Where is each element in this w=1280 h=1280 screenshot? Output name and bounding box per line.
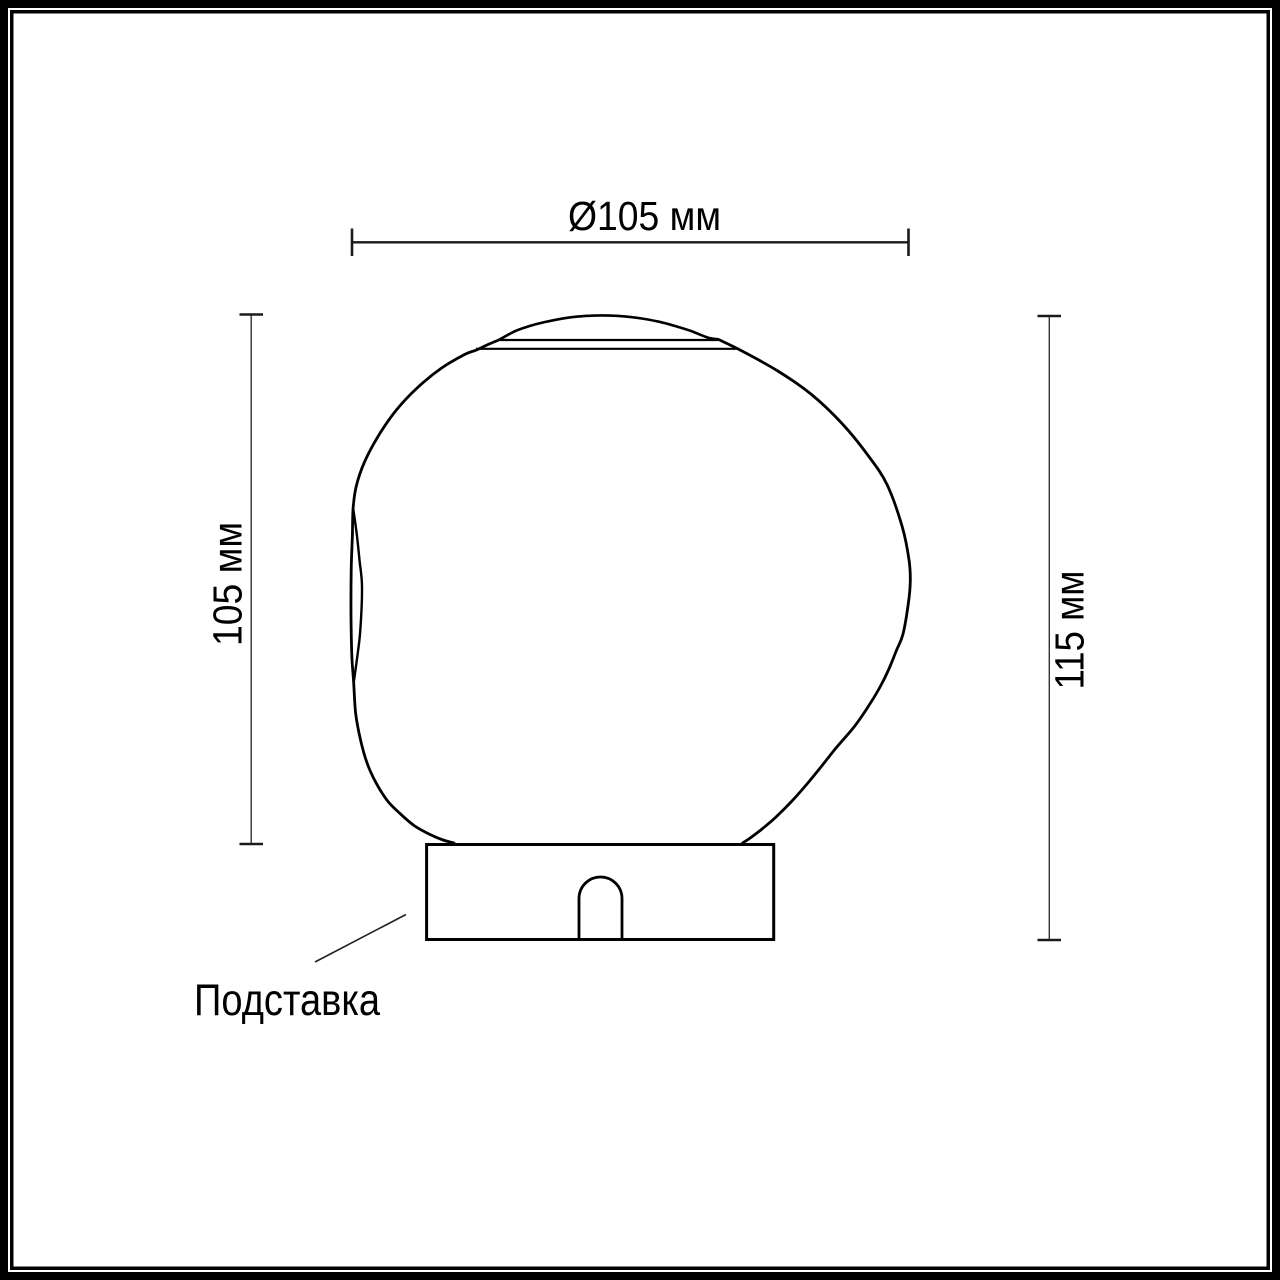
svg-text:Подставка: Подставка bbox=[194, 976, 380, 1025]
svg-text:115 мм: 115 мм bbox=[1047, 571, 1093, 690]
svg-text:105 мм: 105 мм bbox=[205, 522, 251, 646]
svg-text:Ø105 мм: Ø105 мм bbox=[568, 193, 721, 239]
